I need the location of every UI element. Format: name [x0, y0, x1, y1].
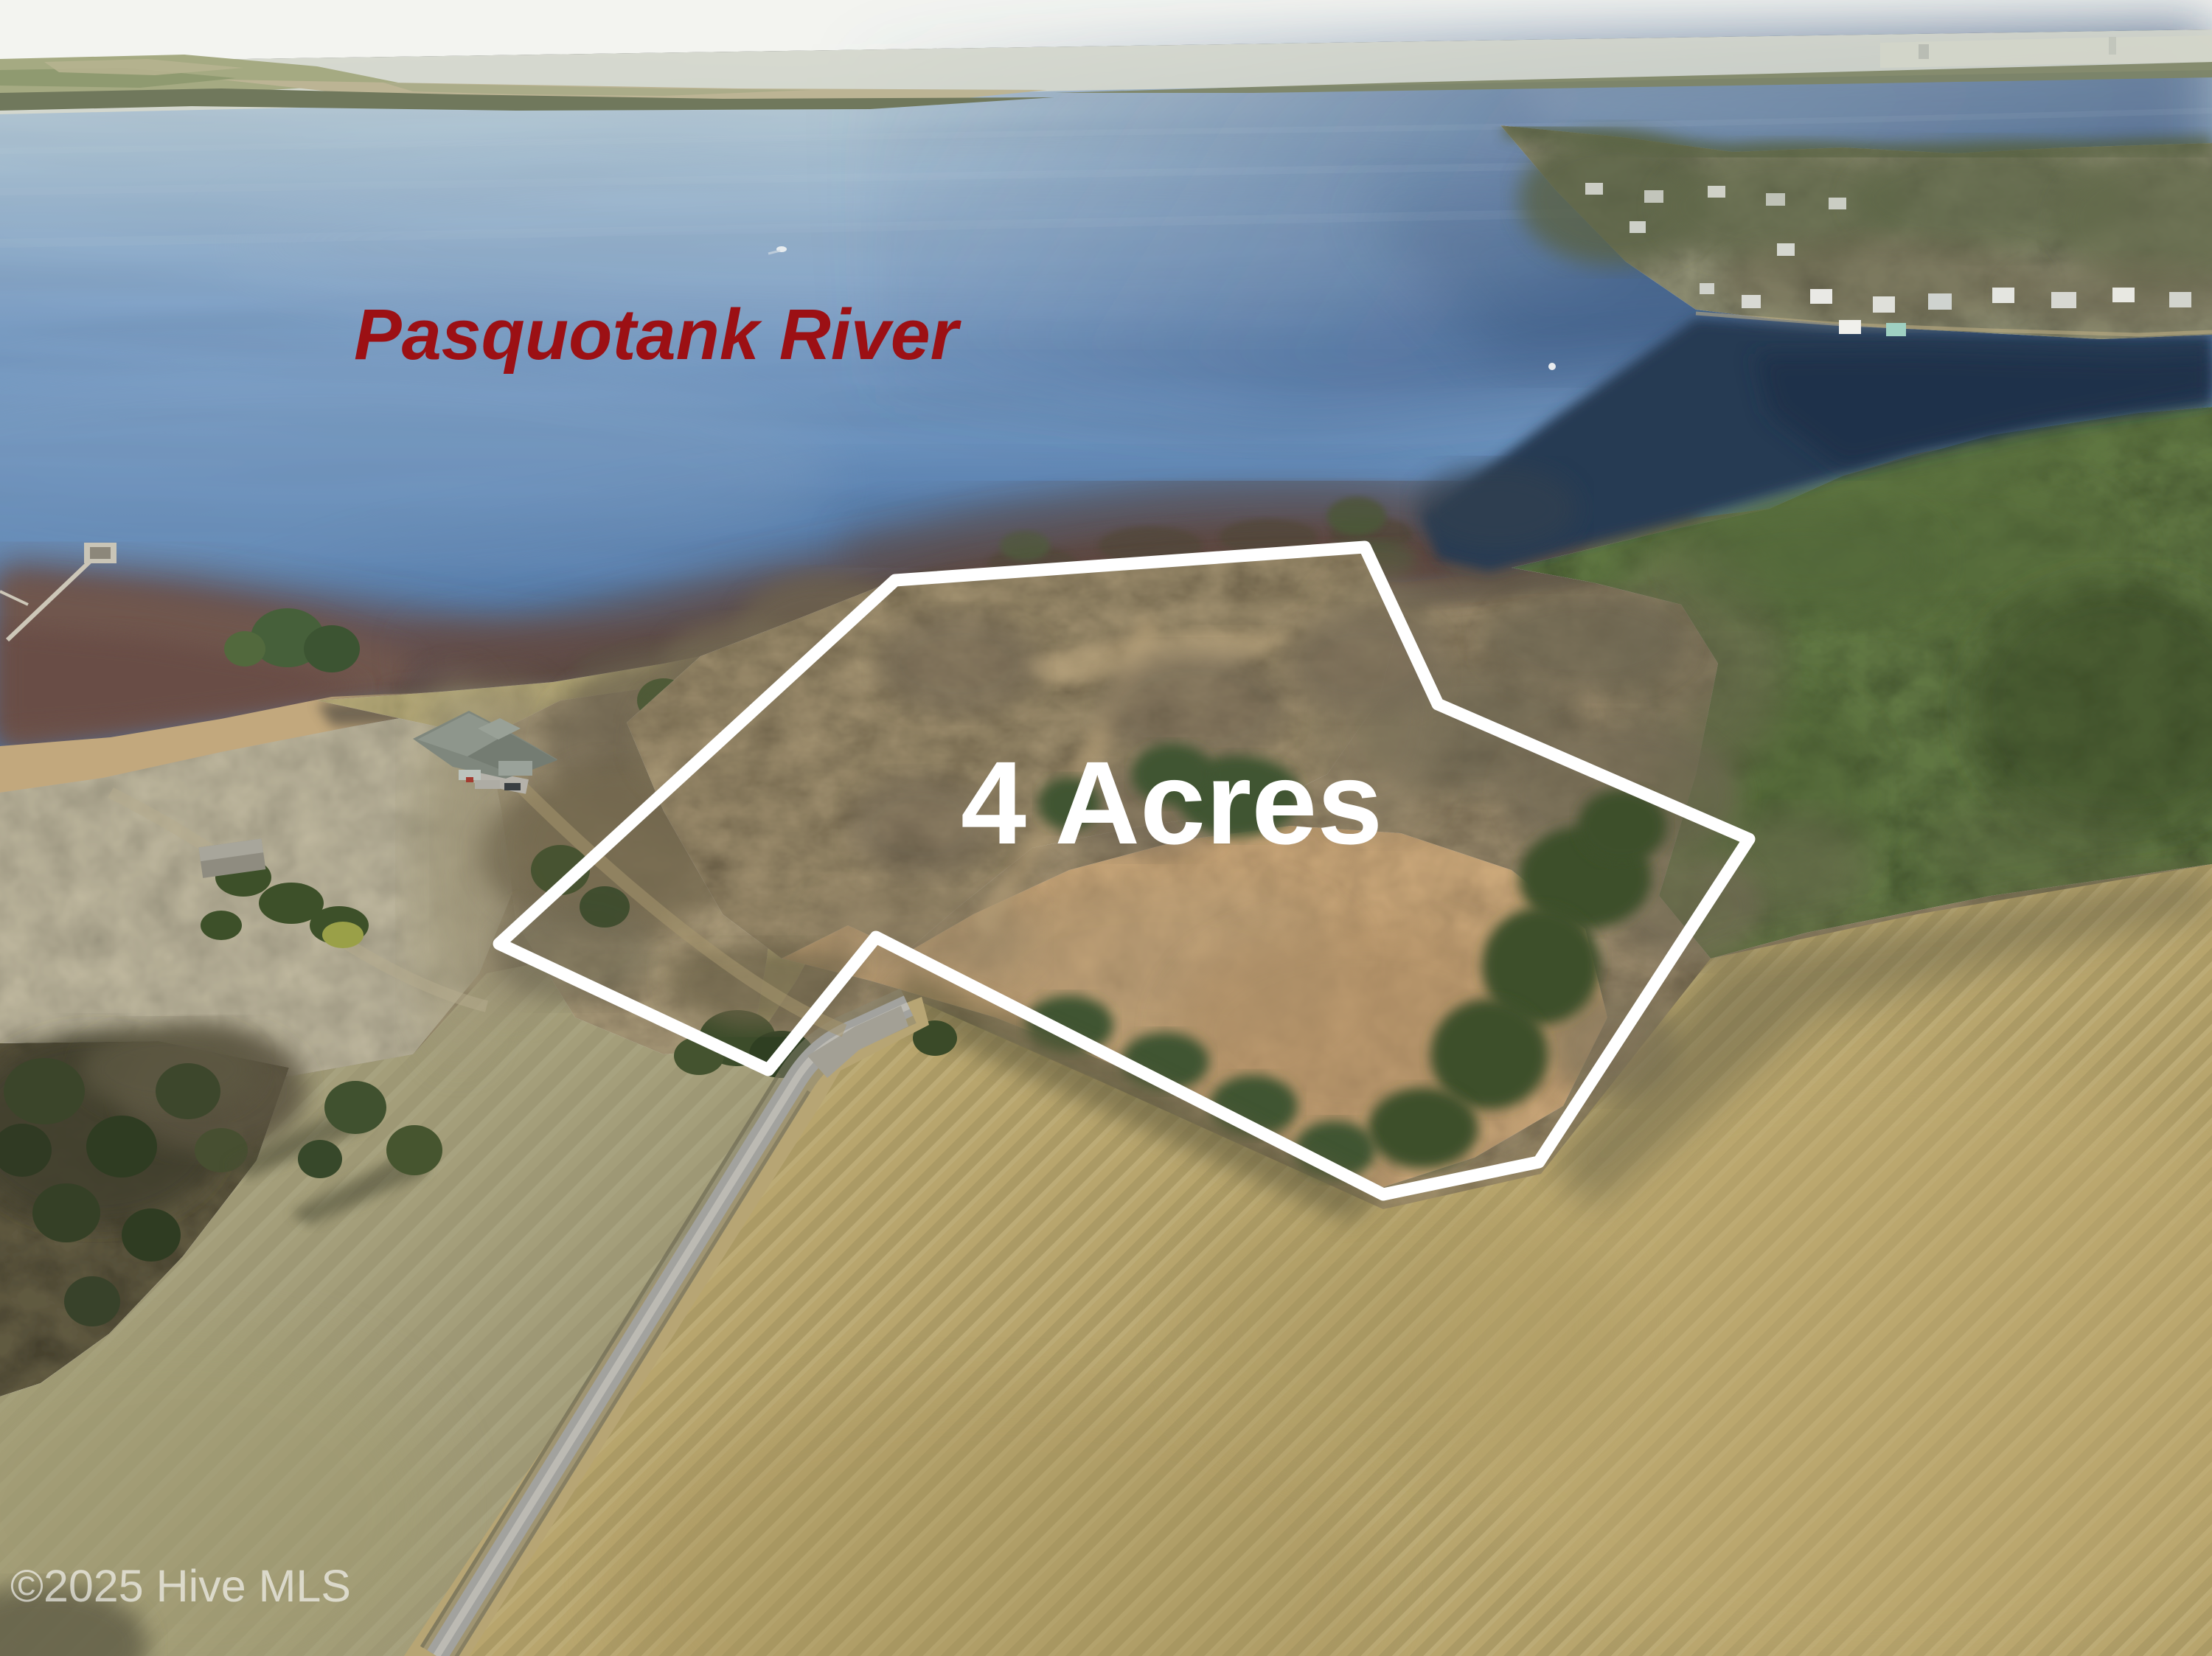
svg-text:©2025 Hive MLS: ©2025 Hive MLS	[10, 1561, 351, 1611]
svg-text:4 Acres: 4 Acres	[961, 737, 1382, 869]
svg-text:Pasquotank River: Pasquotank River	[354, 294, 962, 375]
